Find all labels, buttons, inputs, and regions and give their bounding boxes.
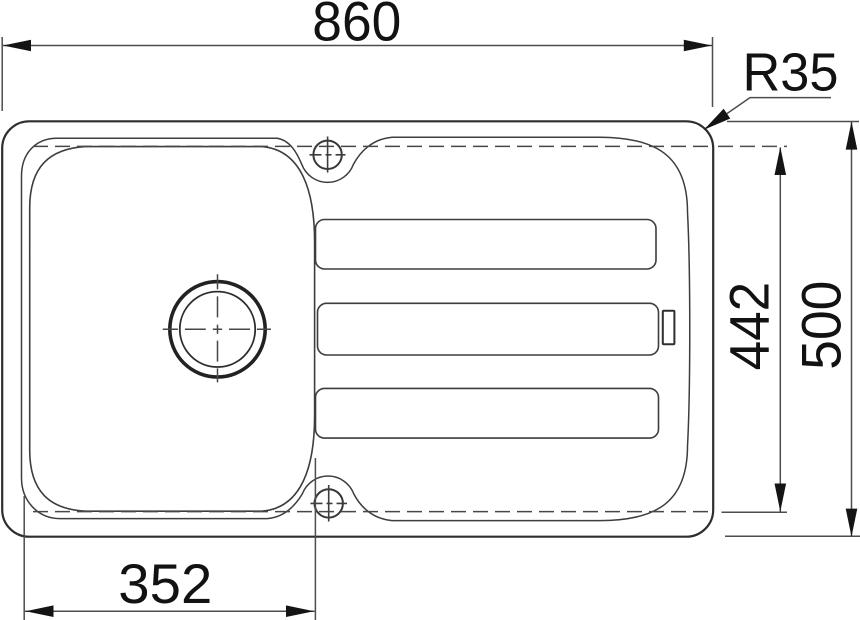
svg-text:860: 860 <box>312 0 401 53</box>
svg-text:R35: R35 <box>743 43 839 103</box>
svg-text:500: 500 <box>791 281 853 370</box>
svg-text:442: 442 <box>718 282 780 371</box>
svg-text:352: 352 <box>118 553 212 615</box>
